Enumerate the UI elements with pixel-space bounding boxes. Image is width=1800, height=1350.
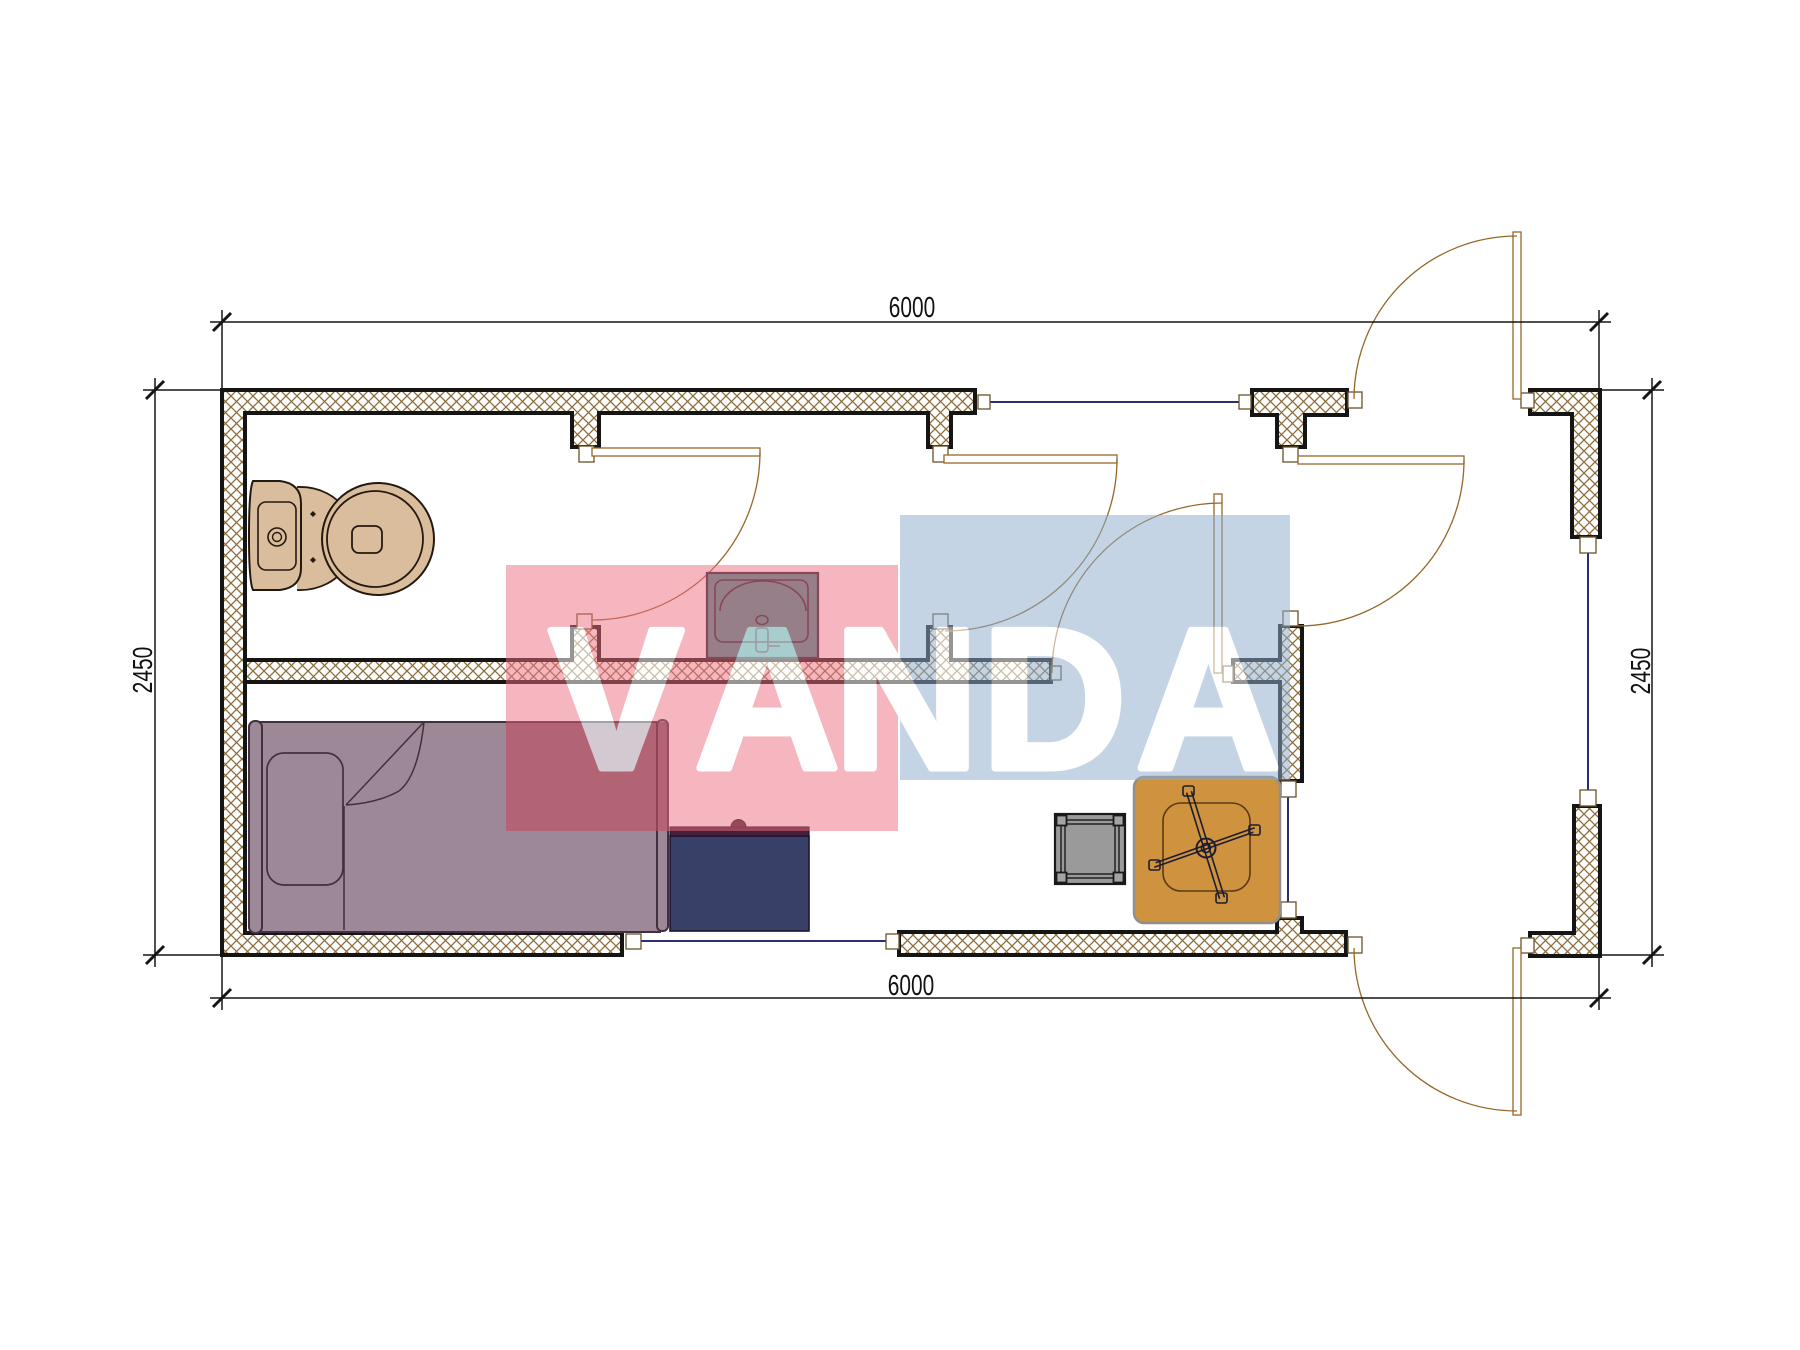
svg-text:6000: 6000: [889, 292, 935, 324]
svg-text:6000: 6000: [888, 970, 934, 1002]
svg-text:2450: 2450: [128, 647, 159, 694]
svg-text:2450: 2450: [1626, 648, 1657, 695]
